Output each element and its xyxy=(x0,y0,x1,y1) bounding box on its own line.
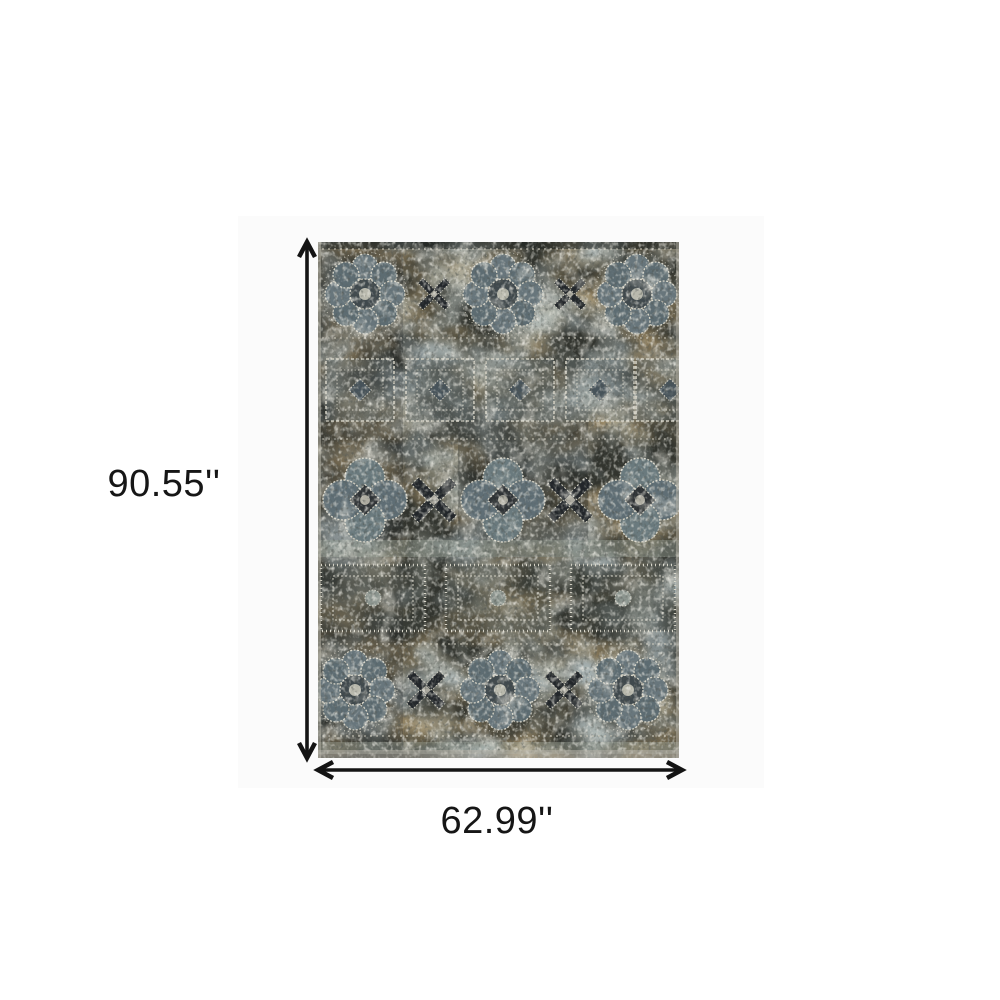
product-dimension-figure: 90.55'' 62.99'' xyxy=(0,0,1000,1000)
width-dimension-label: 62.99'' xyxy=(391,800,603,843)
height-dimension-label: 90.55'' xyxy=(58,463,270,506)
rug-image xyxy=(318,242,679,758)
